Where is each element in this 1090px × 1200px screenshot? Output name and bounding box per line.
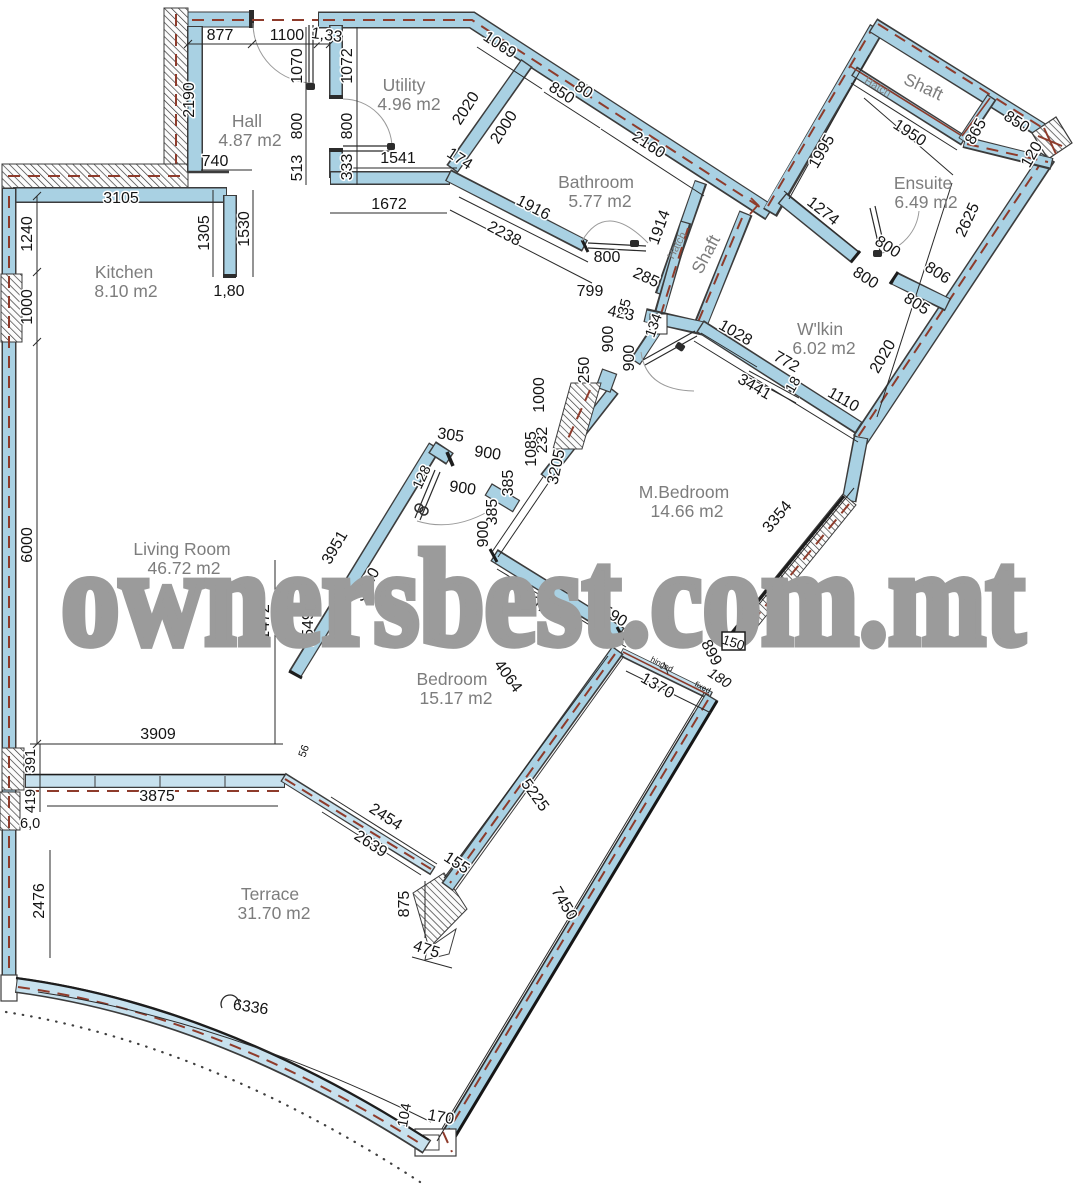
- svg-text:W'lkin: W'lkin: [797, 319, 843, 339]
- svg-text:1240: 1240: [19, 216, 36, 252]
- svg-text:1072: 1072: [339, 48, 356, 84]
- svg-text:Kitchen: Kitchen: [95, 262, 153, 282]
- svg-text:333: 333: [339, 154, 356, 181]
- svg-text:6.49 m2: 6.49 m2: [894, 192, 957, 212]
- svg-text:Hall: Hall: [232, 111, 262, 131]
- svg-text:1530: 1530: [236, 211, 253, 247]
- svg-text:800: 800: [289, 113, 306, 140]
- svg-text:2190: 2190: [181, 82, 198, 118]
- svg-text:385: 385: [500, 470, 517, 497]
- svg-text:6,0: 6,0: [20, 816, 40, 832]
- svg-text:391: 391: [23, 749, 39, 773]
- svg-text:800: 800: [339, 113, 356, 140]
- svg-text:M.Bedroom: M.Bedroom: [639, 482, 729, 502]
- svg-text:1070: 1070: [289, 48, 306, 84]
- svg-text:1,80: 1,80: [213, 283, 244, 300]
- svg-text:900: 900: [600, 326, 617, 353]
- svg-text:6.02 m2: 6.02 m2: [792, 338, 855, 358]
- svg-text:Ensuite: Ensuite: [894, 173, 952, 193]
- svg-text:1672: 1672: [371, 196, 407, 213]
- svg-text:4.87 m2: 4.87 m2: [218, 130, 281, 150]
- svg-text:2476: 2476: [31, 883, 48, 919]
- svg-text:900: 900: [621, 345, 638, 372]
- svg-text:1000: 1000: [19, 289, 36, 325]
- svg-text:15.17 m2: 15.17 m2: [420, 688, 493, 708]
- svg-text:Terrace: Terrace: [241, 884, 299, 904]
- svg-text:800: 800: [594, 249, 621, 266]
- svg-text:513: 513: [289, 155, 306, 182]
- svg-text:877: 877: [207, 27, 234, 44]
- svg-text:3875: 3875: [139, 788, 175, 805]
- svg-text:875: 875: [396, 891, 413, 918]
- svg-text:4.96 m2: 4.96 m2: [377, 94, 440, 114]
- svg-text:31.70 m2: 31.70 m2: [238, 903, 311, 923]
- svg-text:419: 419: [23, 789, 39, 813]
- svg-text:1541: 1541: [380, 150, 416, 167]
- svg-text:8.10 m2: 8.10 m2: [94, 281, 157, 301]
- svg-text:740: 740: [202, 153, 229, 170]
- svg-text:1000: 1000: [531, 377, 548, 413]
- svg-text:250: 250: [576, 357, 593, 384]
- svg-text:1100: 1100: [270, 27, 305, 44]
- svg-text:1305: 1305: [196, 215, 213, 251]
- svg-text:Utility: Utility: [383, 75, 426, 95]
- svg-text:14.66 m2: 14.66 m2: [651, 501, 724, 521]
- svg-text:6000: 6000: [19, 527, 36, 563]
- svg-text:3105: 3105: [103, 190, 139, 207]
- svg-text:ownersbest.com.mt: ownersbest.com.mt: [61, 522, 1025, 675]
- svg-text:799: 799: [577, 283, 604, 300]
- svg-text:3909: 3909: [140, 726, 176, 743]
- svg-text:5.77 m2: 5.77 m2: [568, 191, 631, 211]
- svg-text:Bathroom: Bathroom: [558, 172, 634, 192]
- svg-text:1085: 1085: [523, 431, 540, 467]
